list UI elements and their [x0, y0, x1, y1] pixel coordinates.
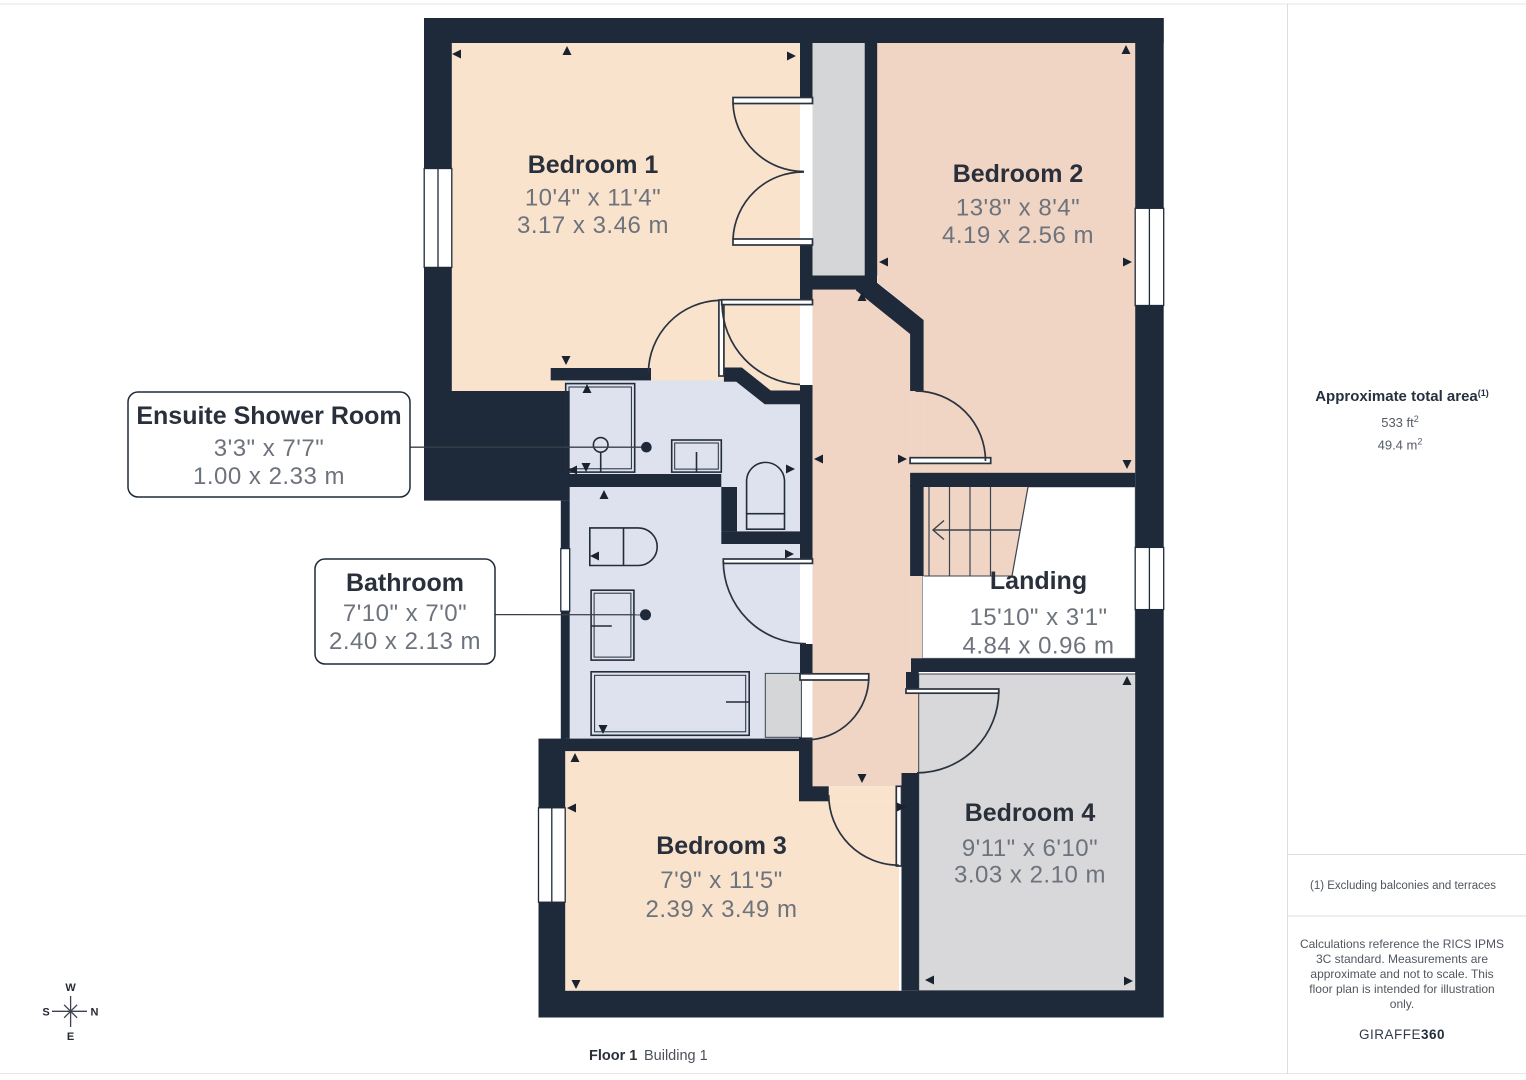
svg-text:533 ft2: 533 ft2	[1381, 414, 1419, 430]
svg-text:7'9" x 11'5": 7'9" x 11'5"	[660, 867, 783, 894]
svg-text:Ensuite Shower Room: Ensuite Shower Room	[136, 402, 401, 430]
svg-text:10'4" x 11'4": 10'4" x 11'4"	[525, 185, 661, 212]
svg-text:floor plan is intended for ill: floor plan is intended for illustration	[1309, 982, 1494, 996]
svg-text:15'10" x 3'1": 15'10" x 3'1"	[969, 604, 1107, 631]
svg-text:7'10" x 7'0": 7'10" x 7'0"	[343, 600, 467, 627]
svg-text:Bedroom 1: Bedroom 1	[528, 151, 659, 179]
svg-text:3.17 x 3.46 m: 3.17 x 3.46 m	[517, 212, 669, 239]
svg-text:49.4 m2: 49.4 m2	[1378, 437, 1423, 453]
svg-text:Bedroom 2: Bedroom 2	[953, 160, 1084, 188]
svg-text:2.39 x 3.49 m: 2.39 x 3.49 m	[646, 896, 798, 923]
svg-text:3'3" x 7'7": 3'3" x 7'7"	[214, 435, 324, 462]
svg-text:3.03 x 2.10 m: 3.03 x 2.10 m	[954, 862, 1106, 889]
svg-text:only.: only.	[1390, 997, 1414, 1011]
svg-text:9'11" x 6'10": 9'11" x 6'10"	[962, 835, 1098, 862]
svg-text:Approximate total area(1): Approximate total area(1)	[1315, 388, 1489, 405]
svg-text:13'8" x 8'4": 13'8" x 8'4"	[956, 195, 1080, 222]
svg-text:(1) Excluding balconies and te: (1) Excluding balconies and terraces	[1310, 880, 1496, 892]
svg-text:S: S	[42, 1007, 49, 1019]
svg-text:Bathroom: Bathroom	[346, 569, 464, 597]
svg-text:3C standard. Measurements are: 3C standard. Measurements are	[1316, 952, 1488, 966]
svg-text:4.84 x 0.96 m: 4.84 x 0.96 m	[963, 633, 1115, 660]
svg-text:Bedroom 4: Bedroom 4	[965, 799, 1096, 827]
svg-text:1.00 x 2.33 m: 1.00 x 2.33 m	[193, 463, 345, 490]
svg-text:Calculations reference the RIC: Calculations reference the RICS IPMS	[1300, 937, 1504, 951]
svg-text:approximate and not to scale.: approximate and not to scale. This	[1310, 967, 1493, 981]
svg-text:GIRAFFE360: GIRAFFE360	[1359, 1027, 1445, 1042]
svg-text:Floor 1: Floor 1	[589, 1048, 637, 1064]
svg-text:Landing: Landing	[990, 567, 1087, 595]
svg-text:Building 1: Building 1	[644, 1048, 708, 1064]
svg-text:2.40 x 2.13 m: 2.40 x 2.13 m	[329, 628, 481, 655]
svg-text:N: N	[91, 1007, 99, 1019]
svg-text:E: E	[67, 1031, 74, 1043]
svg-text:4.19 x 2.56 m: 4.19 x 2.56 m	[942, 222, 1094, 249]
svg-text:Bedroom 3: Bedroom 3	[656, 832, 787, 860]
svg-text:W: W	[65, 982, 76, 994]
